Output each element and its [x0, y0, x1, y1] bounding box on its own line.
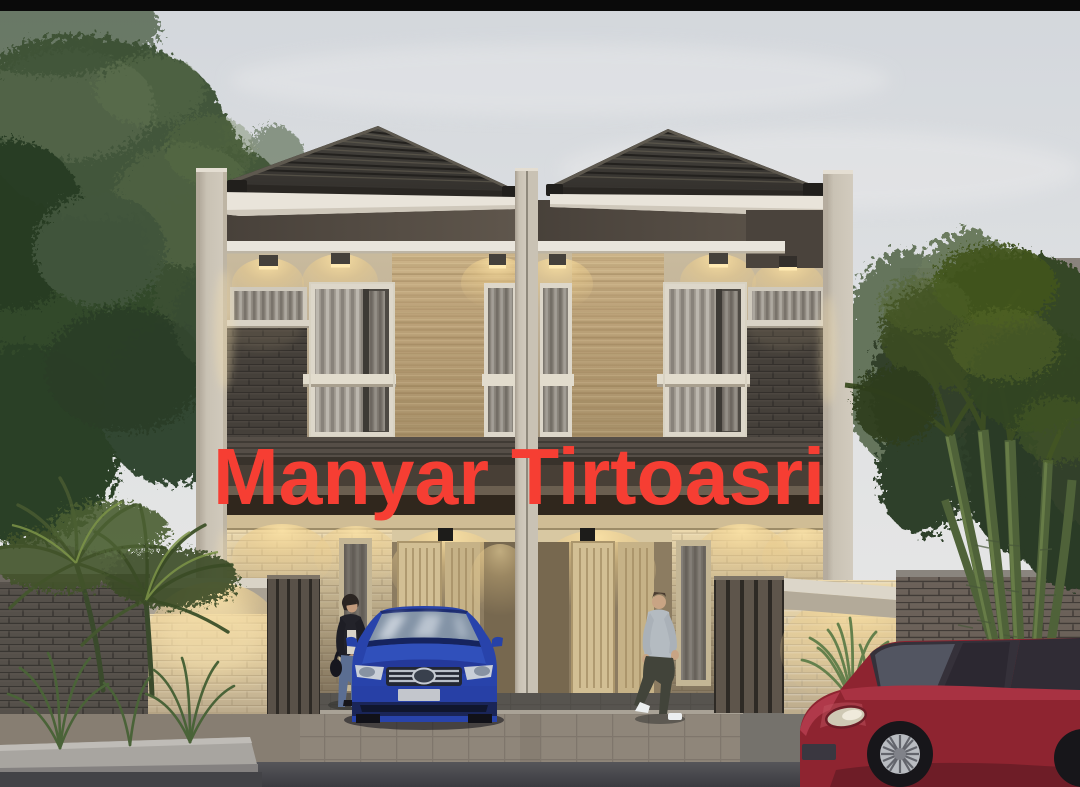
svg-text:Manyar Tirtoasri: Manyar Tirtoasri	[213, 432, 825, 521]
